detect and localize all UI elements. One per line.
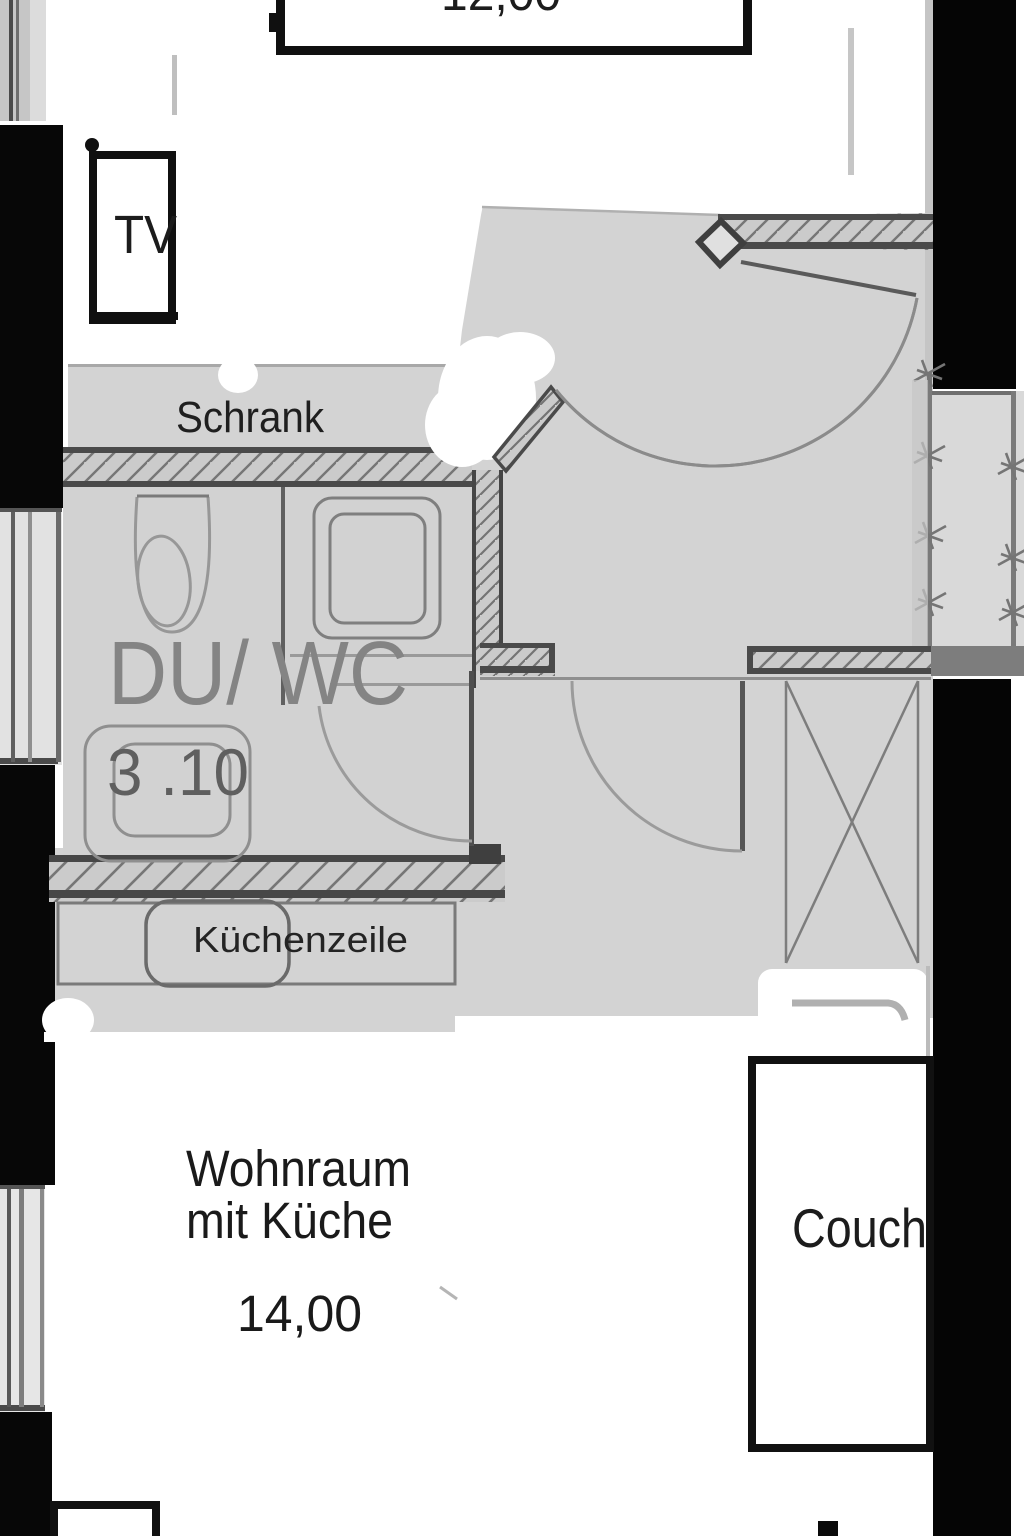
svg-text:Küchenzeile: Küchenzeile [193,919,408,960]
svg-text:Wohnraum: Wohnraum [186,1140,411,1197]
svg-text:mit Küche: mit Küche [186,1192,393,1249]
svg-text:3 .10: 3 .10 [107,735,249,809]
svg-text:DU/ WC: DU/ WC [108,624,408,724]
svg-text:Couch: Couch [792,1197,927,1259]
svg-text:12,00: 12,00 [441,0,561,21]
svg-text:14,00: 14,00 [237,1285,362,1342]
svg-text:TV: TV [114,205,177,265]
svg-text:Schrank: Schrank [176,393,325,442]
